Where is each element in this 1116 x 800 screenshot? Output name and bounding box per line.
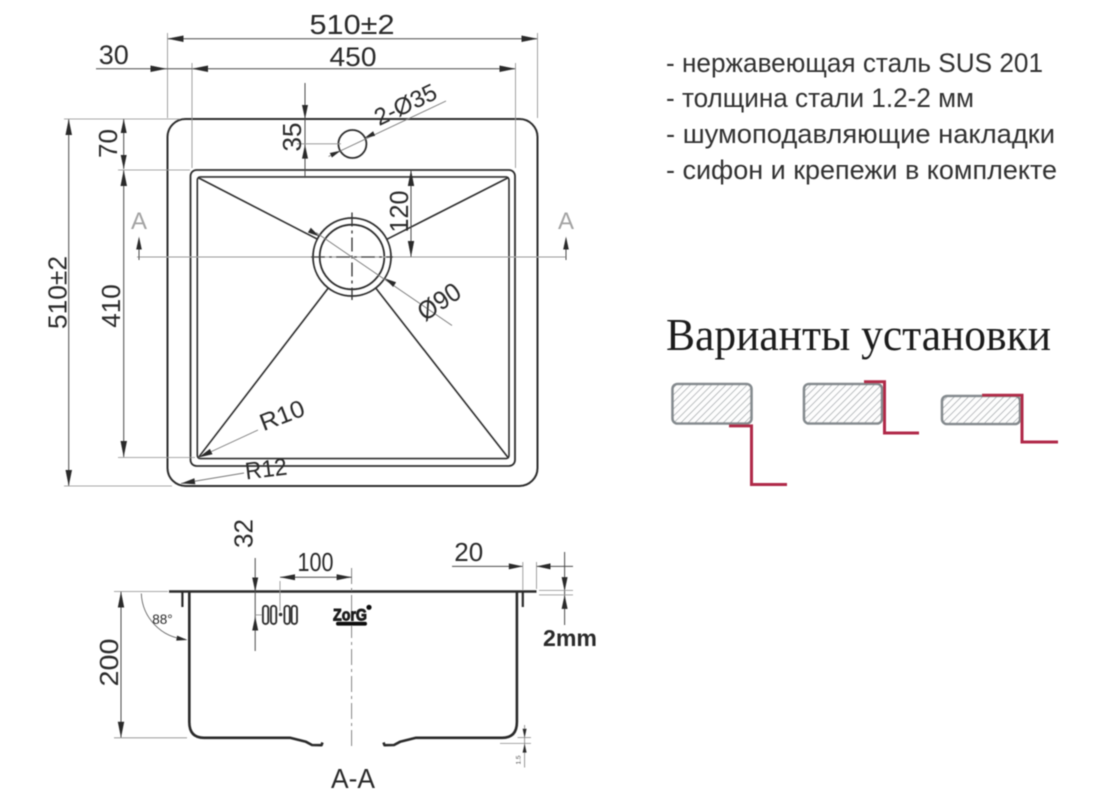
svg-text:450: 450 bbox=[330, 42, 377, 72]
svg-text:ZorG: ZorG bbox=[333, 606, 367, 625]
svg-text:A: A bbox=[558, 208, 574, 235]
svg-text:88°: 88° bbox=[152, 612, 172, 627]
svg-text:100: 100 bbox=[298, 547, 334, 577]
svg-text:510±2: 510±2 bbox=[310, 9, 395, 40]
svg-text:70: 70 bbox=[93, 129, 123, 158]
svg-text:30: 30 bbox=[99, 40, 129, 70]
svg-text:510±2: 510±2 bbox=[43, 256, 73, 329]
svg-text:Варианты установки: Варианты установки bbox=[666, 309, 1051, 360]
svg-text:35: 35 bbox=[277, 123, 307, 152]
svg-text:- нержавеющая сталь SUS 201: - нержавеющая сталь SUS 201 bbox=[666, 48, 1043, 78]
svg-text:2-Ø35: 2-Ø35 bbox=[370, 79, 441, 132]
svg-text:- шумоподавляющие накладки: - шумоподавляющие накладки bbox=[666, 119, 1055, 149]
svg-text:Ø90: Ø90 bbox=[412, 276, 467, 327]
svg-text:20: 20 bbox=[454, 537, 483, 567]
svg-text:R12: R12 bbox=[244, 454, 289, 486]
svg-text:32: 32 bbox=[229, 519, 259, 548]
svg-text:1.5: 1.5 bbox=[516, 755, 523, 764]
svg-text:R10: R10 bbox=[256, 395, 309, 437]
svg-text:410: 410 bbox=[96, 284, 126, 327]
svg-text:A: A bbox=[131, 208, 147, 235]
svg-text:- толщина стали 1.2-2 мм: - толщина стали 1.2-2 мм bbox=[666, 83, 974, 113]
svg-text:120: 120 bbox=[384, 191, 414, 233]
svg-text:200: 200 bbox=[94, 639, 124, 687]
svg-text:A-A: A-A bbox=[331, 763, 375, 794]
svg-text:2mm: 2mm bbox=[543, 625, 597, 651]
svg-text:- сифон и крепежи в комплекте: - сифон и крепежи в комплекте bbox=[666, 155, 1057, 185]
